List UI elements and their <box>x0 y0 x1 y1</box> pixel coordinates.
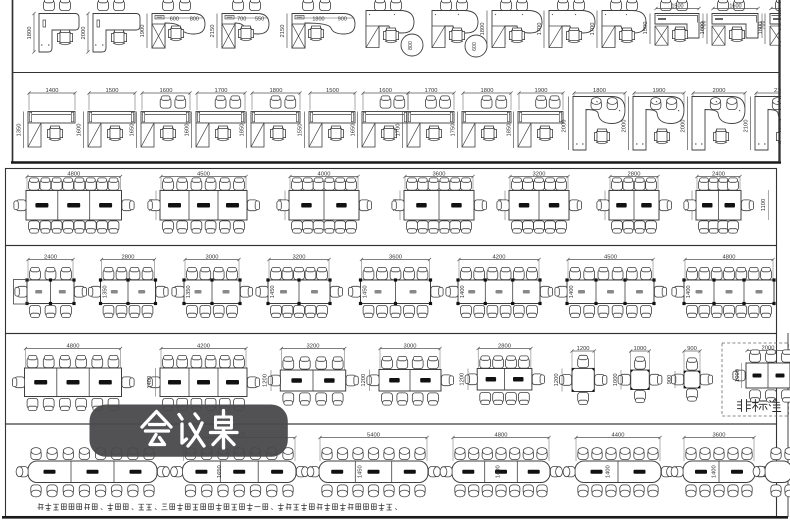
svg-text:1800: 1800 <box>758 22 764 35</box>
svg-text:1450: 1450 <box>270 285 276 298</box>
svg-text:3600: 3600 <box>713 433 726 439</box>
svg-text:1500: 1500 <box>326 88 339 94</box>
svg-text:1500: 1500 <box>671 4 683 10</box>
svg-text:2150: 2150 <box>280 25 286 38</box>
svg-text:1500: 1500 <box>106 88 119 94</box>
svg-text:4200: 4200 <box>197 344 210 350</box>
svg-text:2150: 2150 <box>210 25 216 38</box>
svg-text:1400: 1400 <box>46 88 59 94</box>
svg-text:3000: 3000 <box>206 255 219 261</box>
svg-text:1450: 1450 <box>357 465 363 478</box>
svg-text:1100: 1100 <box>761 199 767 211</box>
svg-text:1200: 1200 <box>263 374 269 387</box>
svg-text:1900: 1900 <box>653 88 666 94</box>
svg-text:1400: 1400 <box>686 285 692 298</box>
svg-text:1800: 1800 <box>593 88 606 94</box>
svg-text:800: 800 <box>190 17 199 23</box>
svg-text:2100: 2100 <box>744 120 750 133</box>
svg-text:1350: 1350 <box>17 124 23 137</box>
svg-text:1400: 1400 <box>712 465 718 478</box>
svg-text:1700: 1700 <box>537 23 543 36</box>
svg-text:1000: 1000 <box>735 369 741 382</box>
svg-text:800: 800 <box>408 41 414 50</box>
svg-text:1850: 1850 <box>507 124 513 137</box>
svg-text:2000: 2000 <box>681 120 687 133</box>
svg-text:1900: 1900 <box>140 25 146 38</box>
svg-text:4800: 4800 <box>67 172 80 178</box>
svg-text:2000: 2000 <box>562 120 568 133</box>
svg-text:1850: 1850 <box>240 124 246 137</box>
svg-text:2000: 2000 <box>81 27 87 40</box>
svg-text:4800: 4800 <box>723 255 736 261</box>
svg-text:1400: 1400 <box>147 376 153 389</box>
svg-text:1400: 1400 <box>496 465 502 478</box>
svg-text:600: 600 <box>170 17 179 23</box>
svg-text:1400: 1400 <box>460 285 466 298</box>
svg-text:700: 700 <box>237 17 246 23</box>
svg-text:3200: 3200 <box>307 344 320 350</box>
svg-text:4800: 4800 <box>67 344 80 350</box>
svg-text:1200: 1200 <box>460 373 466 386</box>
svg-text:4500: 4500 <box>604 255 617 261</box>
svg-text:4000: 4000 <box>318 172 331 178</box>
svg-text:1550: 1550 <box>298 124 304 137</box>
svg-text:1800: 1800 <box>481 88 494 94</box>
svg-text:3000: 3000 <box>404 344 417 350</box>
svg-text:1600: 1600 <box>379 88 392 94</box>
svg-text:4400: 4400 <box>612 433 625 439</box>
svg-text:1700: 1700 <box>215 88 228 94</box>
svg-text:1750: 1750 <box>451 124 457 137</box>
svg-text:1800: 1800 <box>480 23 486 36</box>
svg-text:1600: 1600 <box>729 4 741 10</box>
svg-text:1600: 1600 <box>700 22 706 35</box>
svg-text:5400: 5400 <box>367 433 380 439</box>
svg-text:2800: 2800 <box>498 344 511 350</box>
svg-text:1450: 1450 <box>363 285 369 298</box>
svg-text:1350: 1350 <box>186 285 192 298</box>
svg-text:1000: 1000 <box>634 346 647 352</box>
svg-text:550: 550 <box>255 17 264 23</box>
svg-text:900: 900 <box>667 375 673 385</box>
svg-text:2400: 2400 <box>44 255 57 261</box>
svg-text:1000: 1000 <box>613 373 619 386</box>
svg-text:2800: 2800 <box>628 172 641 178</box>
svg-text:1800: 1800 <box>312 17 324 23</box>
svg-text:1600: 1600 <box>77 124 83 137</box>
svg-text:1650: 1650 <box>217 465 223 478</box>
svg-text:3200: 3200 <box>533 172 546 178</box>
svg-text:2800: 2800 <box>122 255 135 261</box>
svg-text:3600: 3600 <box>389 255 402 261</box>
svg-text:1500: 1500 <box>643 22 649 35</box>
svg-text:900: 900 <box>687 346 697 352</box>
svg-text:1700: 1700 <box>425 88 438 94</box>
svg-text:1200: 1200 <box>361 374 367 387</box>
svg-text:2000: 2000 <box>622 120 628 133</box>
svg-text:1400: 1400 <box>569 285 575 298</box>
svg-text:2400: 2400 <box>712 172 725 178</box>
svg-text:1200: 1200 <box>577 346 590 352</box>
svg-text:1700: 1700 <box>396 124 402 137</box>
svg-text:3200: 3200 <box>293 255 306 261</box>
svg-text:1600: 1600 <box>185 124 191 137</box>
svg-text:3600: 3600 <box>433 172 446 178</box>
svg-text:1600: 1600 <box>160 88 173 94</box>
svg-text:1900: 1900 <box>535 88 548 94</box>
svg-text:1650: 1650 <box>130 124 136 137</box>
svg-text:4200: 4200 <box>493 255 506 261</box>
svg-text:2000: 2000 <box>713 88 726 94</box>
svg-text:1200: 1200 <box>554 373 560 386</box>
svg-text:600: 600 <box>472 42 478 51</box>
svg-text:4500: 4500 <box>197 172 210 178</box>
svg-text:1700: 1700 <box>590 23 596 36</box>
svg-text:1350: 1350 <box>103 285 109 298</box>
svg-text:900: 900 <box>338 17 347 23</box>
svg-text:1800: 1800 <box>270 88 283 94</box>
svg-text:1650: 1650 <box>351 124 357 137</box>
svg-text:1400: 1400 <box>605 465 611 478</box>
svg-text:1800: 1800 <box>27 27 33 40</box>
svg-text:4800: 4800 <box>495 433 508 439</box>
